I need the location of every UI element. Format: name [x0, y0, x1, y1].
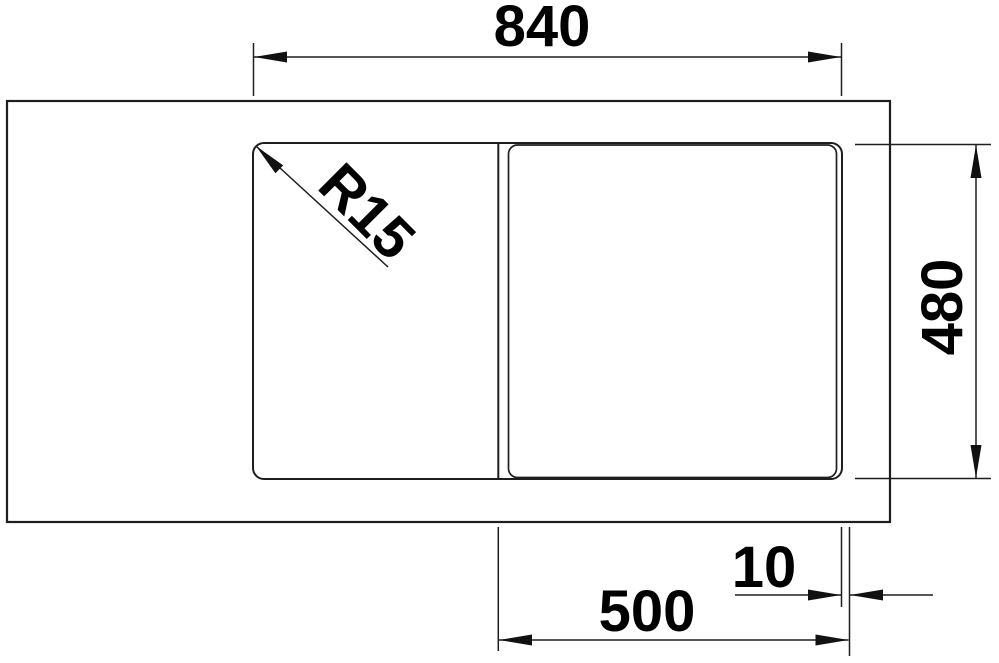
dim-label-overall-depth: 480	[910, 259, 975, 356]
dim-label-edge-offset: 10	[732, 535, 797, 600]
arrowhead-left-icon	[254, 52, 287, 63]
arrowhead-right-icon	[808, 52, 841, 63]
arrowhead-left-icon	[499, 635, 532, 646]
dim-edge-offset: 10	[732, 527, 933, 607]
arrowhead-right-icon	[816, 635, 849, 646]
dim-label-corner-radius: R15	[306, 151, 427, 272]
bowl-outline	[509, 145, 837, 478]
dim-overall-depth: 480	[855, 145, 991, 479]
dim-corner-radius: R15	[256, 146, 428, 272]
sink-outer-outline	[7, 101, 890, 522]
sink-outlines	[7, 101, 890, 522]
dim-label-bowl-width: 500	[599, 579, 696, 644]
arrowhead-right-icon	[808, 590, 841, 601]
arrowhead-diagonal-icon	[256, 146, 283, 173]
arrowhead-down-icon	[971, 445, 982, 478]
dim-label-overall-width: 840	[494, 0, 591, 59]
arrowhead-up-icon	[971, 145, 982, 178]
arrowhead-left-icon	[850, 590, 883, 601]
sink-dimension-drawing: 840 480 500 10 R15	[0, 0, 999, 663]
dim-overall-width: 840	[254, 0, 842, 96]
dim-bowl-width: 500	[498, 527, 849, 656]
